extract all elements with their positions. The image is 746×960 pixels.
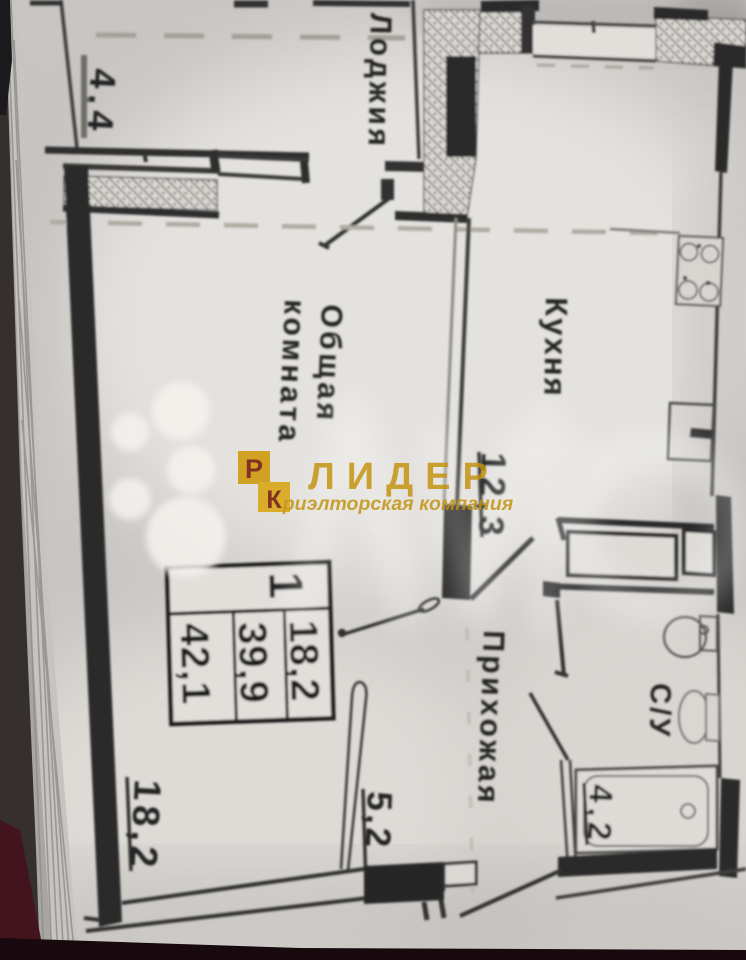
svg-text:Кухня: Кухня: [537, 297, 574, 398]
svg-text:4,2: 4,2: [581, 784, 620, 846]
svg-text:риэлторская компания: риэлторская компания: [282, 493, 514, 515]
svg-text:5,2: 5,2: [358, 791, 399, 851]
svg-text:Прихожая: Прихожая: [471, 630, 510, 807]
svg-text:Лоджия: Лоджия: [362, 13, 397, 150]
svg-text:18,2: 18,2: [121, 779, 168, 873]
svg-text:39,9: 39,9: [230, 621, 276, 704]
svg-text:К: К: [266, 486, 282, 514]
svg-text:4.4: 4.4: [79, 68, 124, 138]
svg-text:Р: Р: [245, 454, 263, 484]
svg-text:ЛИДЕР: ЛИДЕР: [308, 456, 500, 498]
svg-text:С/У: С/У: [643, 683, 676, 740]
svg-text:комната: комната: [272, 299, 311, 446]
svg-text:18,2: 18,2: [281, 619, 327, 702]
svg-text:42,1: 42,1: [172, 622, 218, 705]
